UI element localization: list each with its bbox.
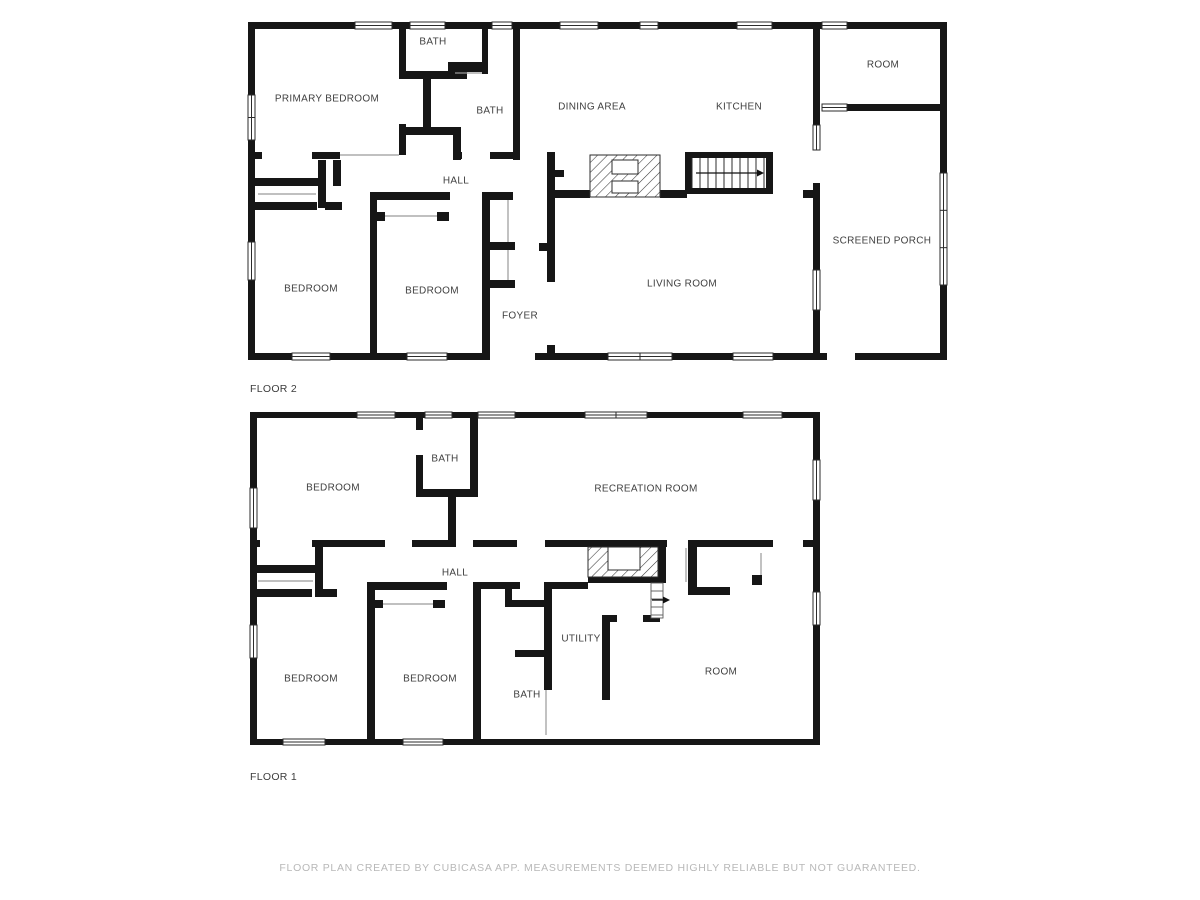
wall	[482, 192, 490, 353]
window	[813, 592, 820, 625]
wall	[512, 600, 544, 607]
window	[248, 242, 255, 280]
window	[822, 22, 847, 29]
wall	[248, 353, 490, 360]
wall	[248, 152, 262, 159]
room-label: BATH	[513, 690, 540, 701]
stairs-landing	[612, 160, 638, 174]
wall	[847, 104, 940, 111]
arrow-head	[663, 597, 670, 604]
wall	[488, 280, 515, 288]
wall	[473, 582, 481, 743]
wall	[423, 79, 431, 129]
wall	[535, 353, 827, 360]
wall	[367, 582, 447, 590]
window	[608, 353, 672, 360]
wall	[325, 202, 342, 210]
wall	[403, 127, 461, 135]
wall	[766, 152, 773, 194]
wall	[248, 22, 255, 360]
wall	[322, 589, 337, 597]
wall	[697, 540, 773, 547]
wall	[588, 577, 658, 583]
room-label: BATH	[476, 106, 503, 117]
wall	[370, 192, 450, 200]
wall	[433, 600, 445, 608]
window	[585, 412, 647, 418]
room-label: DINING AREA	[558, 102, 626, 113]
room-label: BEDROOM	[306, 483, 360, 494]
wall	[250, 739, 817, 745]
stairs-direction-arrow	[696, 170, 764, 177]
wall	[547, 345, 555, 360]
wall	[312, 152, 340, 159]
floor-label: FLOOR 2	[250, 383, 297, 395]
wall	[482, 192, 513, 200]
wall	[544, 582, 552, 690]
room-label: LIVING ROOM	[647, 279, 717, 290]
wall	[658, 540, 666, 583]
wall	[688, 540, 697, 595]
window	[813, 125, 820, 150]
wall	[448, 62, 488, 72]
wall	[813, 310, 820, 360]
window	[492, 22, 512, 29]
wall	[855, 353, 947, 360]
wall	[847, 22, 940, 29]
room-label: BEDROOM	[284, 284, 338, 295]
wall	[250, 412, 257, 745]
room-label: SCREENED PORCH	[833, 236, 932, 247]
room-label: BEDROOM	[284, 674, 338, 685]
window	[743, 412, 782, 418]
window	[478, 412, 515, 418]
wall	[399, 22, 406, 74]
wall	[250, 589, 312, 597]
wall	[250, 412, 817, 418]
room-label: BEDROOM	[403, 674, 457, 685]
window	[940, 173, 947, 285]
arrow-head	[757, 170, 764, 177]
window	[813, 460, 820, 500]
window	[813, 270, 820, 310]
wall	[250, 178, 320, 186]
room-label: FOYER	[502, 311, 538, 322]
wall	[555, 170, 564, 177]
wall	[803, 540, 817, 547]
room-label: PRIMARY BEDROOM	[275, 94, 379, 105]
room-label: ROOM	[867, 60, 899, 71]
window	[822, 104, 847, 111]
wall	[515, 650, 544, 657]
room-label: BEDROOM	[405, 286, 459, 297]
window	[283, 739, 325, 745]
window	[410, 22, 445, 29]
window	[403, 739, 443, 745]
room-label: BATH	[419, 37, 446, 48]
wall	[250, 565, 315, 573]
wall	[813, 22, 820, 125]
wall	[453, 152, 462, 159]
wall	[412, 540, 448, 547]
stairs-landing	[612, 181, 638, 193]
wall	[248, 202, 317, 210]
wall	[490, 152, 520, 159]
window	[560, 22, 598, 29]
wall	[752, 575, 762, 585]
room-label: KITCHEN	[716, 102, 762, 113]
wall	[547, 152, 555, 282]
wall	[688, 587, 730, 595]
wall	[416, 412, 423, 430]
floor-plan-page: PRIMARY BEDROOMBATHBATHDINING AREAKITCHE…	[0, 0, 1200, 900]
room-label: BATH	[431, 454, 458, 465]
wall	[470, 412, 478, 497]
wall	[315, 540, 323, 597]
window	[248, 95, 255, 140]
wall	[803, 190, 817, 198]
wall	[473, 540, 517, 547]
floor-1-plan: BEDROOMBATHRECREATION ROOMHALLBEDROOMBED…	[250, 412, 820, 783]
wall	[373, 600, 383, 608]
wall	[685, 152, 692, 194]
window	[407, 353, 447, 360]
wall	[488, 242, 515, 250]
stairs-landing	[608, 547, 640, 570]
room-label: HALL	[442, 568, 468, 579]
wall	[250, 540, 260, 547]
window	[737, 22, 772, 29]
window	[357, 412, 395, 418]
window	[355, 22, 392, 29]
wall	[375, 212, 385, 221]
footer-disclaimer: FLOOR PLAN CREATED BY CUBICASA APP. MEAS…	[279, 862, 920, 874]
floor-label: FLOOR 1	[250, 771, 297, 783]
stairs-hatched	[590, 155, 660, 197]
wall	[539, 243, 547, 251]
wall	[505, 582, 512, 607]
wall	[416, 489, 477, 497]
wall	[602, 615, 610, 700]
room-label: ROOM	[705, 667, 737, 678]
room-label: RECREATION ROOM	[594, 484, 697, 495]
window	[640, 22, 658, 29]
wall	[333, 160, 341, 186]
wall	[685, 152, 773, 158]
window	[733, 353, 773, 360]
floor-2-plan: PRIMARY BEDROOMBATHBATHDINING AREAKITCHE…	[248, 22, 947, 395]
window	[250, 625, 257, 658]
window	[292, 353, 330, 360]
room-label: UTILITY	[561, 634, 600, 645]
stairs-hatched	[588, 547, 658, 577]
wall	[553, 190, 590, 198]
floor-plan-drawing: PRIMARY BEDROOMBATHBATHDINING AREAKITCHE…	[0, 0, 1200, 900]
wall	[399, 71, 467, 79]
wall	[437, 212, 449, 221]
room-label: HALL	[443, 176, 469, 187]
window	[250, 488, 257, 528]
wall	[448, 492, 456, 547]
wall	[318, 160, 326, 208]
window	[425, 412, 452, 418]
wall	[545, 540, 667, 547]
wall	[513, 29, 520, 160]
wall	[660, 190, 687, 198]
wall	[685, 188, 773, 194]
wall	[248, 22, 822, 29]
